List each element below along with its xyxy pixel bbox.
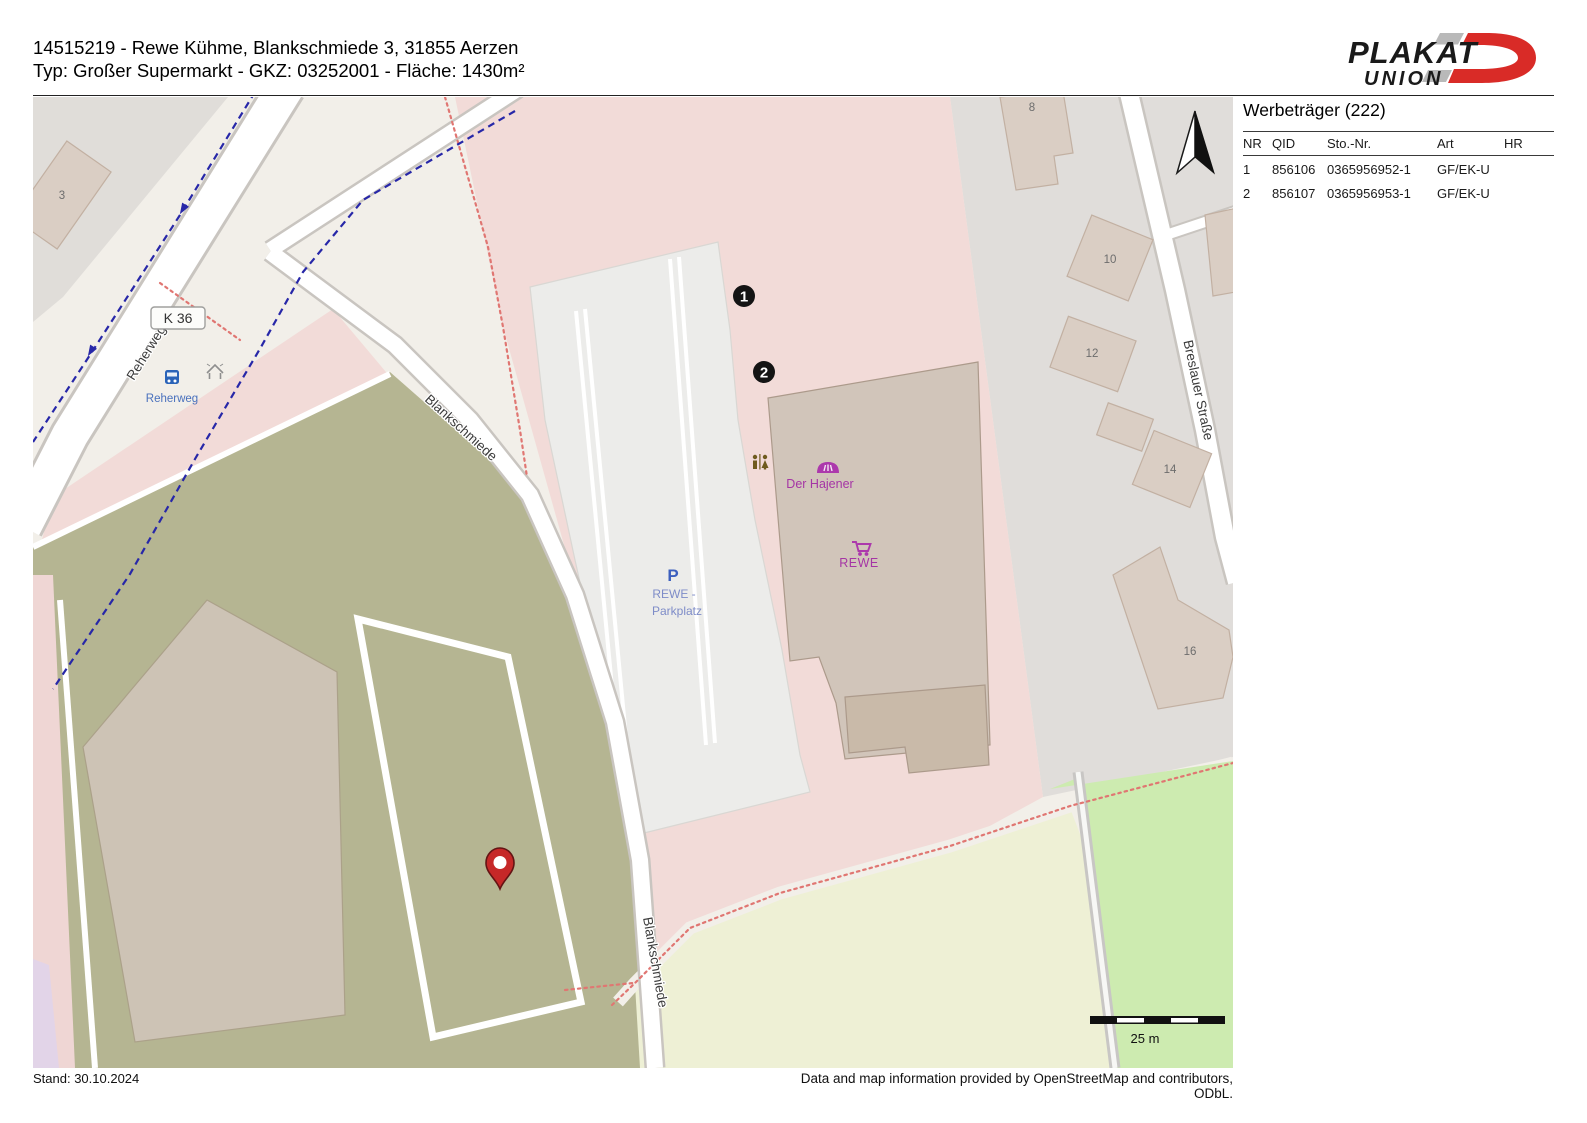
house-number-16: 16 bbox=[1184, 646, 1197, 658]
plakat-union-logo: PLAKAT UNION bbox=[1340, 26, 1540, 90]
site-marker-1-label: 1 bbox=[740, 289, 748, 306]
col-header-sto: Sto.-Nr. bbox=[1327, 132, 1437, 156]
road-ref-k36: K 36 bbox=[164, 310, 193, 326]
cell-nr: 1 bbox=[1243, 156, 1272, 181]
scale-bar-label: 25 m bbox=[1131, 1031, 1160, 1046]
cell-hr bbox=[1504, 156, 1554, 181]
cell-sto: 0365956952-1 bbox=[1327, 156, 1437, 181]
house-number-14: 14 bbox=[1164, 464, 1177, 476]
cell-qid: 856106 bbox=[1272, 156, 1327, 181]
logo-graphic: PLAKAT UNION bbox=[1340, 26, 1540, 90]
house-number-8: 8 bbox=[1029, 102, 1035, 114]
header-line1: 14515219 - Rewe Kühme, Blankschmiede 3, … bbox=[33, 36, 524, 59]
cell-hr bbox=[1504, 180, 1554, 204]
werbetraeger-panel: Werbeträger (222) NR QID Sto.-Nr. Art HR… bbox=[1243, 100, 1554, 204]
poi-label-rewe: REWE bbox=[839, 556, 879, 570]
site-marker-2-label: 2 bbox=[760, 365, 768, 382]
road-ref-badge: K 36 bbox=[151, 307, 205, 329]
col-header-art: Art bbox=[1437, 132, 1504, 156]
poi-label-der-hajener: Der Hajener bbox=[786, 477, 853, 491]
house-number-12: 12 bbox=[1086, 348, 1099, 360]
col-header-hr: HR bbox=[1504, 132, 1554, 156]
col-header-qid: QID bbox=[1272, 132, 1327, 156]
page-header: 14515219 - Rewe Kühme, Blankschmiede 3, … bbox=[33, 36, 524, 82]
col-header-nr: NR bbox=[1243, 132, 1272, 156]
parking-name-line2: Parkplatz bbox=[652, 604, 702, 618]
panel-title: Werbeträger (222) bbox=[1243, 100, 1554, 121]
cell-qid: 856107 bbox=[1272, 180, 1327, 204]
site-marker-2: 2 bbox=[753, 361, 775, 383]
logo-word-bottom: UNION bbox=[1364, 68, 1443, 90]
site-marker-1: 1 bbox=[733, 285, 755, 307]
cell-nr: 2 bbox=[1243, 180, 1272, 204]
table-row: 1 856106 0365956952-1 GF/EK-U bbox=[1243, 156, 1554, 181]
bus-stop-icon bbox=[165, 370, 179, 384]
house-number-3: 3 bbox=[59, 190, 65, 202]
cell-sto: 0365956953-1 bbox=[1327, 180, 1437, 204]
werbetraeger-table: NR QID Sto.-Nr. Art HR 1 856106 03659569… bbox=[1243, 131, 1554, 204]
table-row: 2 856107 0365956953-1 GF/EK-U bbox=[1243, 180, 1554, 204]
header-line2: Typ: Großer Supermarkt - GKZ: 03252001 -… bbox=[33, 59, 524, 82]
footer-attribution: Data and map information provided by Ope… bbox=[780, 1071, 1233, 1101]
parking-name-line1: REWE - bbox=[652, 587, 695, 601]
parking-p-icon: P bbox=[667, 566, 678, 585]
report-page: 14515219 - Rewe Kühme, Blankschmiede 3, … bbox=[0, 0, 1587, 1123]
house-number-10: 10 bbox=[1104, 254, 1117, 266]
footer-stand: Stand: 30.10.2024 bbox=[33, 1071, 139, 1086]
cell-art: GF/EK-U bbox=[1437, 180, 1504, 204]
header-separator bbox=[33, 95, 1554, 96]
map-svg: Reherweg Blankschmiede Blankschmiede Bre… bbox=[33, 97, 1233, 1068]
map-canvas: Reherweg Blankschmiede Blankschmiede Bre… bbox=[33, 97, 1233, 1068]
cell-art: GF/EK-U bbox=[1437, 156, 1504, 181]
table-header-row: NR QID Sto.-Nr. Art HR bbox=[1243, 132, 1554, 156]
logo-word-top: PLAKAT bbox=[1348, 35, 1479, 70]
bus-stop-label: Reherweg bbox=[146, 393, 198, 405]
